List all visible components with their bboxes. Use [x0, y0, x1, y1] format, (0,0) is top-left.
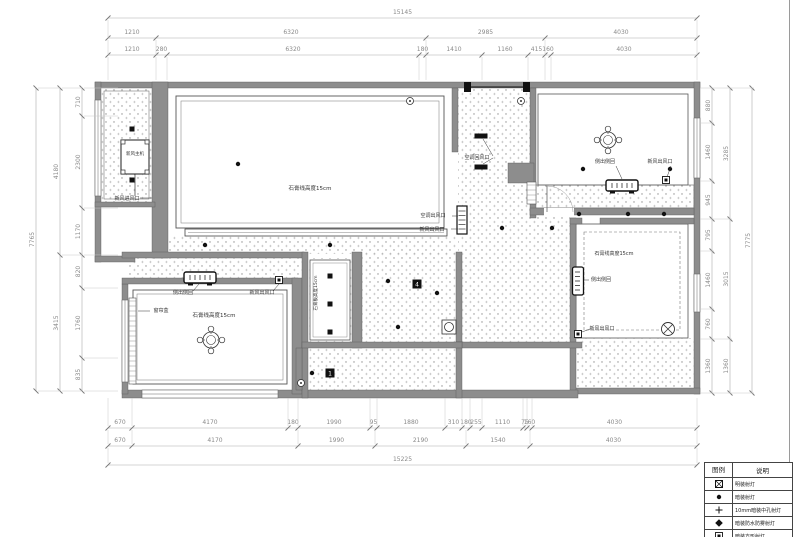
dim-text: 670: [114, 437, 126, 444]
wall: [570, 218, 582, 224]
wall: [600, 218, 694, 224]
square-light-icon: [328, 302, 333, 307]
entry-door-jamb: [523, 82, 530, 92]
annotation-label: 石膏线高度15cm: [193, 311, 236, 319]
bedroom-tr-ceiling: [538, 94, 688, 185]
legend-dot-icon: [711, 492, 727, 502]
dim-text: 6320: [285, 46, 300, 53]
downlight-icon: [386, 279, 390, 283]
ac-unit-side-icon: [573, 267, 584, 295]
dim-text: 670: [114, 419, 126, 426]
legend-label: 暗装防水防雾射灯: [733, 517, 792, 529]
dim-text: 1880: [403, 419, 418, 426]
dim-text: 1990: [326, 419, 341, 426]
door-opening: [544, 208, 574, 216]
curtain-box-icon: [129, 298, 136, 384]
fresh-air-outlet-icon: [663, 177, 670, 184]
dot: [520, 100, 522, 102]
dim-text: 310: [448, 419, 460, 426]
downlight-icon: [396, 325, 400, 329]
fresh-air-outlet-icon: [276, 277, 283, 284]
legend-row: 10mm暗装中孔射灯: [705, 503, 792, 516]
annotation-label: 新风出风口: [589, 325, 614, 332]
dim-text: 1990: [329, 437, 344, 444]
downlight-icon: [550, 226, 554, 230]
ac-foot: [207, 283, 212, 286]
return-air-vent-icon: [475, 165, 488, 170]
ac-foot: [188, 283, 193, 286]
core: [665, 179, 668, 182]
annotation-label: 新风出风口: [647, 158, 672, 165]
legend-header-row: 图例 说明: [705, 463, 792, 477]
wall: [152, 82, 168, 258]
curtain-box-icon: [527, 182, 536, 204]
annotation-label: 新风出风口: [249, 289, 274, 296]
dim-text: 1210: [124, 46, 139, 53]
tag-number: 4: [415, 281, 419, 288]
wall: [302, 252, 308, 398]
legend-symbol-cell: [705, 530, 733, 537]
dim-text: 1360: [723, 358, 730, 373]
sheet-border-line: [789, 0, 790, 537]
legend-cross-icon: [711, 505, 727, 515]
annotation-label: 空调回风口: [464, 154, 489, 161]
ceiling-tag: 4: [413, 280, 422, 289]
dim-text: 4030: [606, 437, 621, 444]
wall: [352, 252, 362, 348]
hatch-region: [458, 212, 570, 342]
hatch-region: [302, 348, 456, 390]
dim-text: 95: [370, 419, 378, 426]
legend-symbol-cell: [705, 517, 733, 529]
wall: [302, 342, 462, 348]
floor-plan-drawing: 4115145121063202985403012102806320180141…: [0, 0, 795, 537]
dim-text: 820: [75, 266, 82, 278]
annotation-label: 新风出风口: [419, 226, 444, 233]
dim-text: 280: [156, 46, 168, 53]
downlight-icon: [626, 212, 630, 216]
dim-text: 4180: [53, 164, 60, 179]
downlight-icon: [581, 167, 585, 171]
detector-icon: [298, 380, 305, 387]
annotation-label: 侧出侧回: [173, 289, 193, 296]
bedroom-bl-gypsum-outer: [133, 290, 287, 384]
dim-text: 1460: [705, 144, 712, 159]
circled-x-fan-icon: [662, 323, 675, 336]
dim-text: 1540: [490, 437, 505, 444]
unit-foot: [145, 170, 149, 174]
wall: [508, 163, 534, 183]
dim-text: 880: [705, 100, 712, 112]
dim-text: 4170: [207, 437, 222, 444]
dim-text: 1410: [446, 46, 461, 53]
fresh-air-main-unit: [121, 140, 149, 174]
dim-text: 1110: [495, 419, 510, 426]
legend-row: 明装射灯: [705, 477, 792, 490]
downlight-icon: [203, 243, 207, 247]
dim-text: 945: [705, 194, 712, 206]
downlight-icon: [435, 291, 439, 295]
dim-text: 3415: [53, 315, 60, 330]
ac-unit-side-icon: [606, 180, 638, 194]
dot: [300, 382, 302, 384]
hatch-region: [168, 236, 456, 254]
legend-label: 10mm暗装中孔射灯: [733, 504, 792, 516]
legend-row: 暗装射灯: [705, 490, 792, 503]
wall: [95, 202, 155, 207]
downlight-icon: [500, 226, 504, 230]
fresh-air-outlet-icon: [575, 331, 582, 338]
ac-foot: [610, 191, 615, 194]
dim-text: 2300: [75, 154, 82, 169]
dim-text: 835: [75, 369, 82, 381]
legend-symbol-cell: [705, 478, 733, 490]
dim-text: 160: [524, 419, 536, 426]
tag-number: 1: [328, 370, 332, 377]
dim-text: 6320: [283, 29, 298, 36]
unit-foot: [121, 170, 125, 174]
legend-symbol-cell: [705, 504, 733, 516]
core: [577, 333, 580, 336]
legend-row: 暗装方形射灯: [705, 529, 792, 537]
dim-text: 4170: [202, 419, 217, 426]
dim-text: 1760: [75, 315, 82, 330]
dim-text: 180: [287, 419, 299, 426]
downlight-icon: [236, 162, 240, 166]
annotation-label: 石膏线高度15cm: [595, 250, 634, 257]
exhaust-fan-icon: [442, 320, 456, 334]
dim-text: 1210: [124, 29, 139, 36]
wall: [456, 252, 462, 348]
legend-row: 暗装防水防雾射灯: [705, 516, 792, 529]
dim-text: 7775: [745, 233, 752, 248]
downlight-icon: [328, 243, 332, 247]
legend-boxed-x-icon: [711, 479, 727, 489]
cad-sheet: 4115145121063202985403012102806320180141…: [0, 0, 795, 537]
dim-text: 7765: [29, 232, 36, 247]
dim-text: 15225: [393, 456, 412, 463]
dim-text: 710: [75, 96, 82, 108]
entry-door-jamb: [464, 82, 471, 92]
ac-indoor-louver-icon: [457, 206, 467, 234]
living-gypsum-outer: [176, 96, 444, 228]
wall: [456, 342, 462, 398]
core: [278, 279, 281, 282]
strip: [527, 182, 536, 204]
annotation-label: 侧出侧回: [595, 158, 615, 165]
wall: [456, 342, 582, 348]
detector-icon: [518, 98, 525, 105]
legend-label: 明装射灯: [733, 478, 792, 490]
dot: [409, 100, 411, 102]
dim-text: 4030: [616, 46, 631, 53]
dim-text: 4030: [607, 419, 622, 426]
annotation-label: 石膏线高度15cm: [289, 184, 332, 192]
legend-table: 图例 说明 明装射灯暗装射灯10mm暗装中孔射灯暗装防水防雾射灯暗装方形射灯: [704, 462, 793, 537]
dim-text: 1360: [705, 358, 712, 373]
annotation-label: 侧出侧回: [591, 276, 611, 283]
wall: [452, 88, 458, 152]
dim-text: 160: [542, 46, 554, 53]
legend-header-desc: 说明: [733, 465, 792, 475]
downlight-icon: [662, 212, 666, 216]
annotation-label: 窗帘盒: [153, 307, 168, 314]
ac-unit-side-icon: [184, 272, 216, 286]
legend-label: 暗装射灯: [733, 491, 792, 503]
square-light-icon: [328, 274, 333, 279]
legend-symbol-cell: [705, 491, 733, 503]
dim-text: 180: [417, 46, 429, 53]
wall: [95, 82, 700, 88]
dim-text: 1160: [497, 46, 512, 53]
legend-label: 暗装方形射灯: [733, 530, 792, 537]
dim-text: 1170: [75, 224, 82, 239]
dim-text: 2985: [478, 29, 493, 36]
wall: [122, 252, 304, 258]
square-light-icon: [130, 127, 135, 132]
hatch-region: [458, 88, 532, 212]
dim-text: 3285: [723, 146, 730, 161]
dim-text: 3015: [723, 271, 730, 286]
dim-text: 255: [470, 419, 482, 426]
dim-text: 15145: [393, 9, 412, 16]
ceiling-tag: 1: [326, 369, 335, 378]
hatch-region: [576, 338, 694, 388]
unit-foot: [145, 140, 149, 144]
legend-boxed-square-icon: [711, 531, 727, 537]
dim-text: 2190: [413, 437, 428, 444]
dim-text: 760: [705, 318, 712, 330]
annotation-label: 空调出风口: [420, 212, 445, 219]
legend-rows: 明装射灯暗装射灯10mm暗装中孔射灯暗装防水防雾射灯暗装方形射灯: [705, 477, 792, 537]
downlight-icon: [310, 371, 314, 375]
legend-header-symbol: 图例: [705, 463, 733, 477]
dim-text: 1460: [705, 272, 712, 287]
legend-diamond-dot-icon: [711, 518, 727, 528]
return-air-vent-icon: [475, 134, 488, 139]
wall: [575, 388, 700, 394]
wall: [570, 218, 576, 394]
unit-foot: [121, 140, 125, 144]
annotation-label: 新风进风口: [114, 195, 139, 202]
detector-icon: [407, 98, 414, 105]
ac-foot: [629, 191, 634, 194]
dim-text: 4030: [613, 29, 628, 36]
annotation-label: 石膏板高度15cm: [312, 275, 319, 310]
dim-text: 795: [705, 229, 712, 241]
annotation-label: 新风主机: [126, 150, 144, 157]
dim-text: 415: [531, 46, 543, 53]
downlight-icon: [577, 212, 581, 216]
square-light-icon: [328, 330, 333, 335]
square-light-icon: [130, 178, 135, 183]
